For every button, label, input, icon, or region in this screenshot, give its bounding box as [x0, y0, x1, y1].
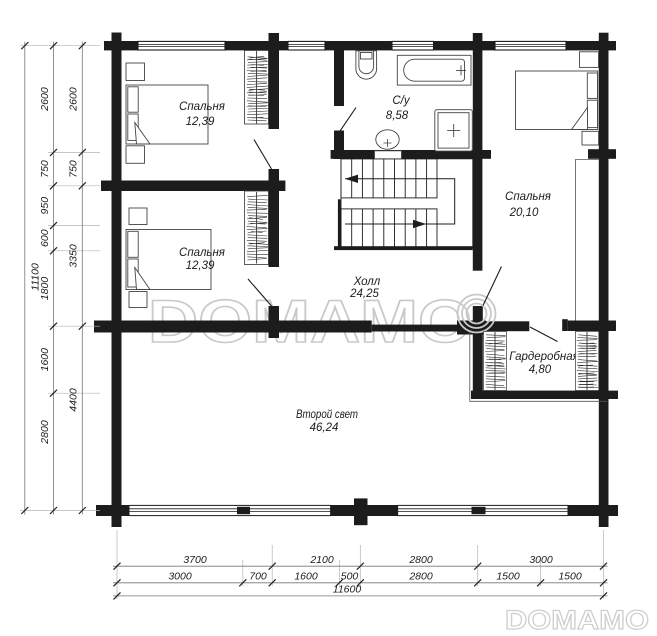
svg-text:Спальня: Спальня	[179, 247, 225, 259]
svg-text:1500: 1500	[496, 571, 520, 583]
svg-text:1600: 1600	[39, 348, 51, 372]
svg-text:1800: 1800	[39, 277, 51, 301]
svg-text:3000: 3000	[529, 554, 553, 566]
svg-text:С/у: С/у	[392, 95, 411, 107]
svg-text:1500: 1500	[558, 571, 582, 583]
svg-text:750: 750	[68, 160, 80, 178]
svg-text:4400: 4400	[68, 388, 80, 412]
svg-text:20,10: 20,10	[509, 207, 539, 219]
svg-text:1600: 1600	[294, 571, 318, 583]
svg-text:Спальня: Спальня	[505, 191, 551, 203]
svg-text:750: 750	[39, 160, 51, 178]
svg-text:8,58: 8,58	[386, 110, 409, 122]
svg-text:3350: 3350	[68, 244, 80, 268]
svg-text:DOMAMO: DOMAMO	[505, 605, 649, 635]
svg-text:3700: 3700	[183, 554, 207, 566]
svg-text:46,24: 46,24	[310, 422, 339, 434]
svg-text:3000: 3000	[168, 571, 192, 583]
svg-text:2800: 2800	[408, 554, 433, 566]
svg-text:Спальня: Спальня	[179, 101, 225, 113]
svg-text:2600: 2600	[68, 87, 80, 112]
svg-text:500: 500	[341, 571, 359, 583]
svg-text:2800: 2800	[408, 571, 433, 583]
svg-text:600: 600	[39, 229, 51, 247]
svg-text:Гардеробная: Гардеробная	[509, 351, 579, 363]
svg-text:24,25: 24,25	[349, 288, 379, 300]
svg-text:2800: 2800	[39, 420, 51, 445]
svg-text:11600: 11600	[333, 584, 362, 596]
svg-text:Холл: Холл	[353, 276, 381, 288]
svg-text:Второй свет: Второй свет	[296, 409, 358, 421]
svg-text:2100: 2100	[309, 554, 334, 566]
svg-text:2600: 2600	[39, 87, 51, 112]
svg-text:12,39: 12,39	[186, 116, 215, 128]
svg-text:700: 700	[249, 571, 267, 583]
svg-text:4,80: 4,80	[529, 364, 552, 376]
svg-text:950: 950	[39, 197, 51, 215]
svg-text:12,39: 12,39	[186, 260, 215, 272]
